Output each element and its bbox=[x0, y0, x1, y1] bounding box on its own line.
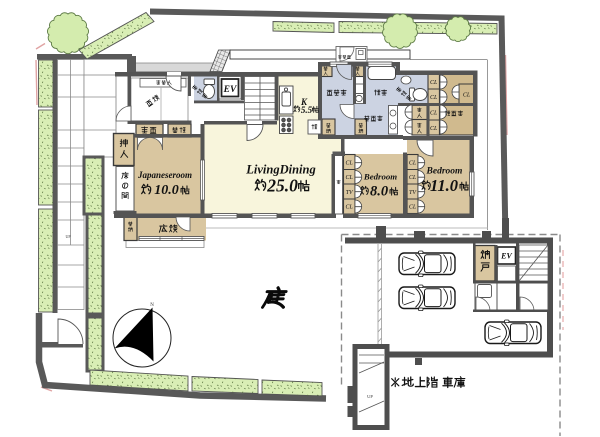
svg-text:5.5: 5.5 bbox=[301, 105, 313, 115]
svg-text:25.0: 25.0 bbox=[266, 176, 298, 196]
svg-text:CL: CL bbox=[409, 205, 417, 211]
svg-text:CL: CL bbox=[463, 93, 471, 99]
svg-text:Bedroom: Bedroom bbox=[363, 172, 397, 182]
svg-text:LivingDining: LivingDining bbox=[245, 163, 315, 177]
svg-text:CL: CL bbox=[346, 175, 354, 181]
svg-text:10.0: 10.0 bbox=[154, 183, 179, 198]
svg-text:CL: CL bbox=[430, 95, 438, 101]
svg-text:UP: UP bbox=[65, 234, 71, 239]
svg-text:11.0: 11.0 bbox=[430, 176, 458, 195]
svg-text:CL: CL bbox=[346, 205, 354, 211]
svg-text:EV: EV bbox=[500, 252, 512, 261]
svg-text:CL: CL bbox=[430, 111, 438, 117]
svg-text:CL: CL bbox=[409, 175, 417, 181]
svg-text:CL: CL bbox=[346, 161, 354, 167]
svg-text:Japaneseroom: Japaneseroom bbox=[137, 170, 192, 180]
svg-text:CL: CL bbox=[430, 80, 438, 86]
svg-text:CL: CL bbox=[409, 161, 417, 167]
svg-text:CL: CL bbox=[430, 126, 438, 132]
svg-text:N: N bbox=[150, 303, 154, 308]
svg-text:UP: UP bbox=[367, 394, 373, 399]
svg-text:8.0: 8.0 bbox=[370, 184, 388, 200]
svg-text:EV: EV bbox=[223, 85, 237, 95]
svg-text:Bedroom: Bedroom bbox=[426, 167, 463, 177]
